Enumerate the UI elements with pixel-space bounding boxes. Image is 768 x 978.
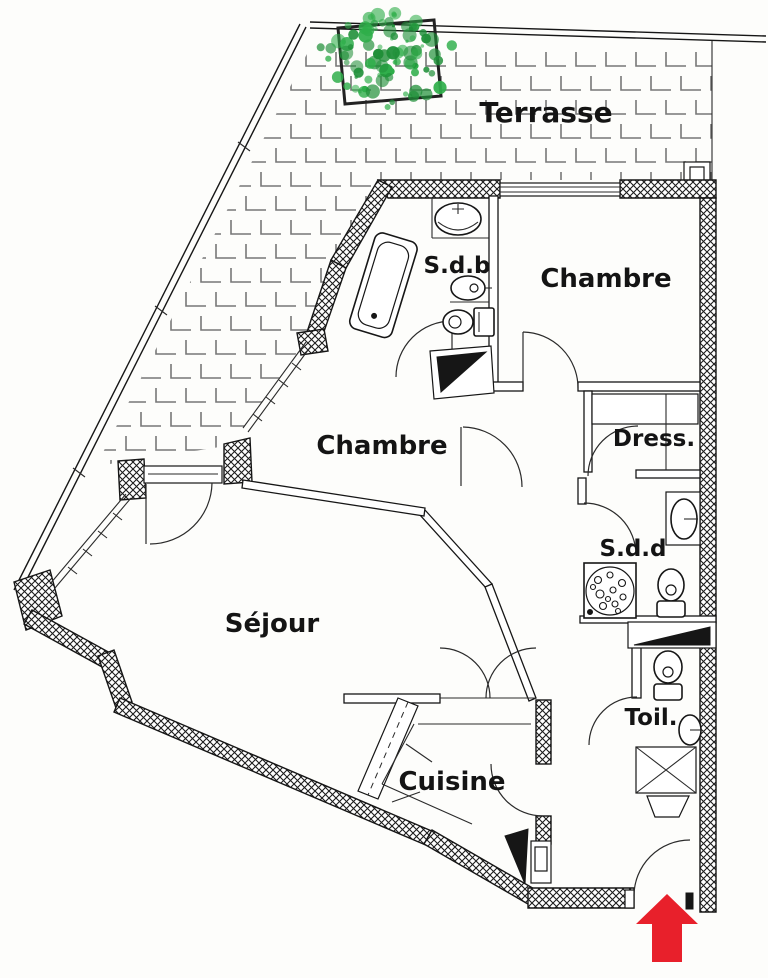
wall-toil-left (632, 646, 641, 698)
appliance-inner (535, 847, 547, 871)
wall-hall-diag-c (485, 584, 536, 701)
wall-right (700, 198, 716, 912)
terrace-top-border (310, 28, 766, 42)
room-label-sdd: S.d.d (600, 536, 667, 562)
floor-plan-page: Terrasse (0, 0, 768, 978)
plant-foliage-blob (421, 88, 433, 100)
bathroom-sdb (348, 198, 494, 399)
entrance-jamb (625, 890, 634, 908)
window-sejour-glass (50, 494, 126, 584)
plant-foliage-blob (421, 44, 425, 48)
bidet-icon (451, 276, 485, 300)
shower-drain (588, 610, 593, 615)
plant-foliage-blob (386, 46, 399, 59)
plant-foliage-blob (345, 22, 352, 29)
plant-foliage-blob (433, 81, 446, 94)
wall-sdd-left-stub (578, 478, 586, 504)
wall-kitchen-block-lower (536, 816, 551, 844)
plant-foliage-blob (348, 29, 358, 39)
plant-foliage-blob (332, 71, 344, 83)
plant-foliage-blob (376, 60, 389, 73)
plant-foliage-blob (389, 100, 395, 106)
room-label-terrasse: Terrasse (479, 96, 612, 129)
plant-foliage-blob (423, 67, 429, 73)
plant-foliage-blob (317, 43, 325, 51)
dress-shelf (592, 394, 698, 424)
plant-foliage-blob (355, 75, 358, 78)
plant-foliage-blob (373, 49, 384, 60)
toilet-room (636, 651, 702, 817)
plant-foliage-blob (410, 35, 416, 41)
plant-foliage-blob (340, 51, 349, 60)
plant-foliage-blob (371, 8, 385, 22)
window-ticks (68, 513, 122, 574)
toilet-base (657, 601, 685, 617)
toilet-base (654, 684, 682, 700)
room-label-chambre-mid: Chambre (316, 431, 447, 461)
plant-foliage-blob (325, 56, 331, 62)
plant-foliage-blob (364, 76, 372, 84)
plant-foliage-blob (392, 24, 395, 27)
wall-block-left (118, 459, 146, 500)
wall-chambre-mid-south (242, 480, 425, 516)
plant-foliage-blob (331, 34, 346, 49)
room-label-chambre-top: Chambre (540, 264, 671, 294)
plant-foliage-blob (429, 48, 441, 60)
room-label-sdb: S.d.b (424, 253, 491, 279)
room-label-toil: Toil. (625, 705, 678, 731)
plant-foliage-blob (352, 85, 360, 93)
plant-foliage-blob (391, 32, 399, 40)
room-label-dress: Dress. (613, 426, 695, 452)
floor-plan-drawing: Terrasse (0, 0, 768, 978)
room-label-cuisine: Cuisine (398, 767, 505, 797)
plant-foliage-blob (409, 23, 417, 31)
wall-kitchen-top (344, 694, 440, 703)
wall-hall-top-b (578, 382, 700, 391)
door-arc-chambre-top (523, 332, 578, 388)
shower-room-sdd (584, 492, 716, 648)
plant-foliage-blob (447, 40, 457, 50)
wall-dress-bottom (636, 470, 700, 478)
plant-foliage-blob (348, 44, 354, 50)
window-chambre-top (500, 183, 620, 196)
plant-foliage-blob (363, 27, 368, 32)
plant-foliage-blob (343, 82, 351, 90)
toilet-drain (449, 316, 461, 328)
window-sejour-glass (55, 498, 131, 588)
plant-foliage-blob (429, 70, 436, 77)
wall-kitchen-block-upper (536, 700, 551, 764)
wall-top-left (378, 180, 500, 198)
entrance-hinge-post (686, 893, 693, 909)
plant-foliage-blob (405, 40, 408, 43)
toilet-drain (666, 585, 676, 595)
bidet-drain (470, 284, 478, 292)
plant-foliage-blob (376, 74, 389, 87)
wall-hall-diag-b (420, 510, 492, 589)
plant-foliage-blob (409, 85, 422, 98)
door-arc-entrance (634, 840, 690, 896)
toilet-drain (663, 667, 673, 677)
plant-foliage-blob (344, 60, 350, 66)
wall-top-right (620, 180, 716, 198)
plant-foliage-blob (419, 29, 426, 36)
plant-foliage-blob (366, 84, 380, 98)
wall-block-a (297, 329, 328, 355)
toilet-tank (474, 308, 494, 336)
room-label-sejour: Séjour (225, 609, 320, 639)
plant-foliage-blob (365, 58, 376, 69)
plant-foliage-blob (374, 27, 378, 31)
plant-foliage-blob (411, 48, 422, 59)
plant-foliage-blob (403, 91, 408, 96)
plant-foliage-blob (385, 104, 391, 110)
plant-foliage-blob (424, 32, 439, 47)
wall-southwest-step (98, 650, 132, 708)
plant-foliage-blob (411, 68, 419, 76)
plant-foliage-blob (392, 12, 397, 17)
bin-shelf (647, 796, 689, 817)
door-arc-sejour-terrace (150, 483, 212, 544)
wall-bottom (528, 888, 634, 908)
door-arc-double-left (440, 648, 490, 698)
door-arc-chambre-mid (463, 427, 522, 487)
wall-block-b (224, 438, 252, 484)
